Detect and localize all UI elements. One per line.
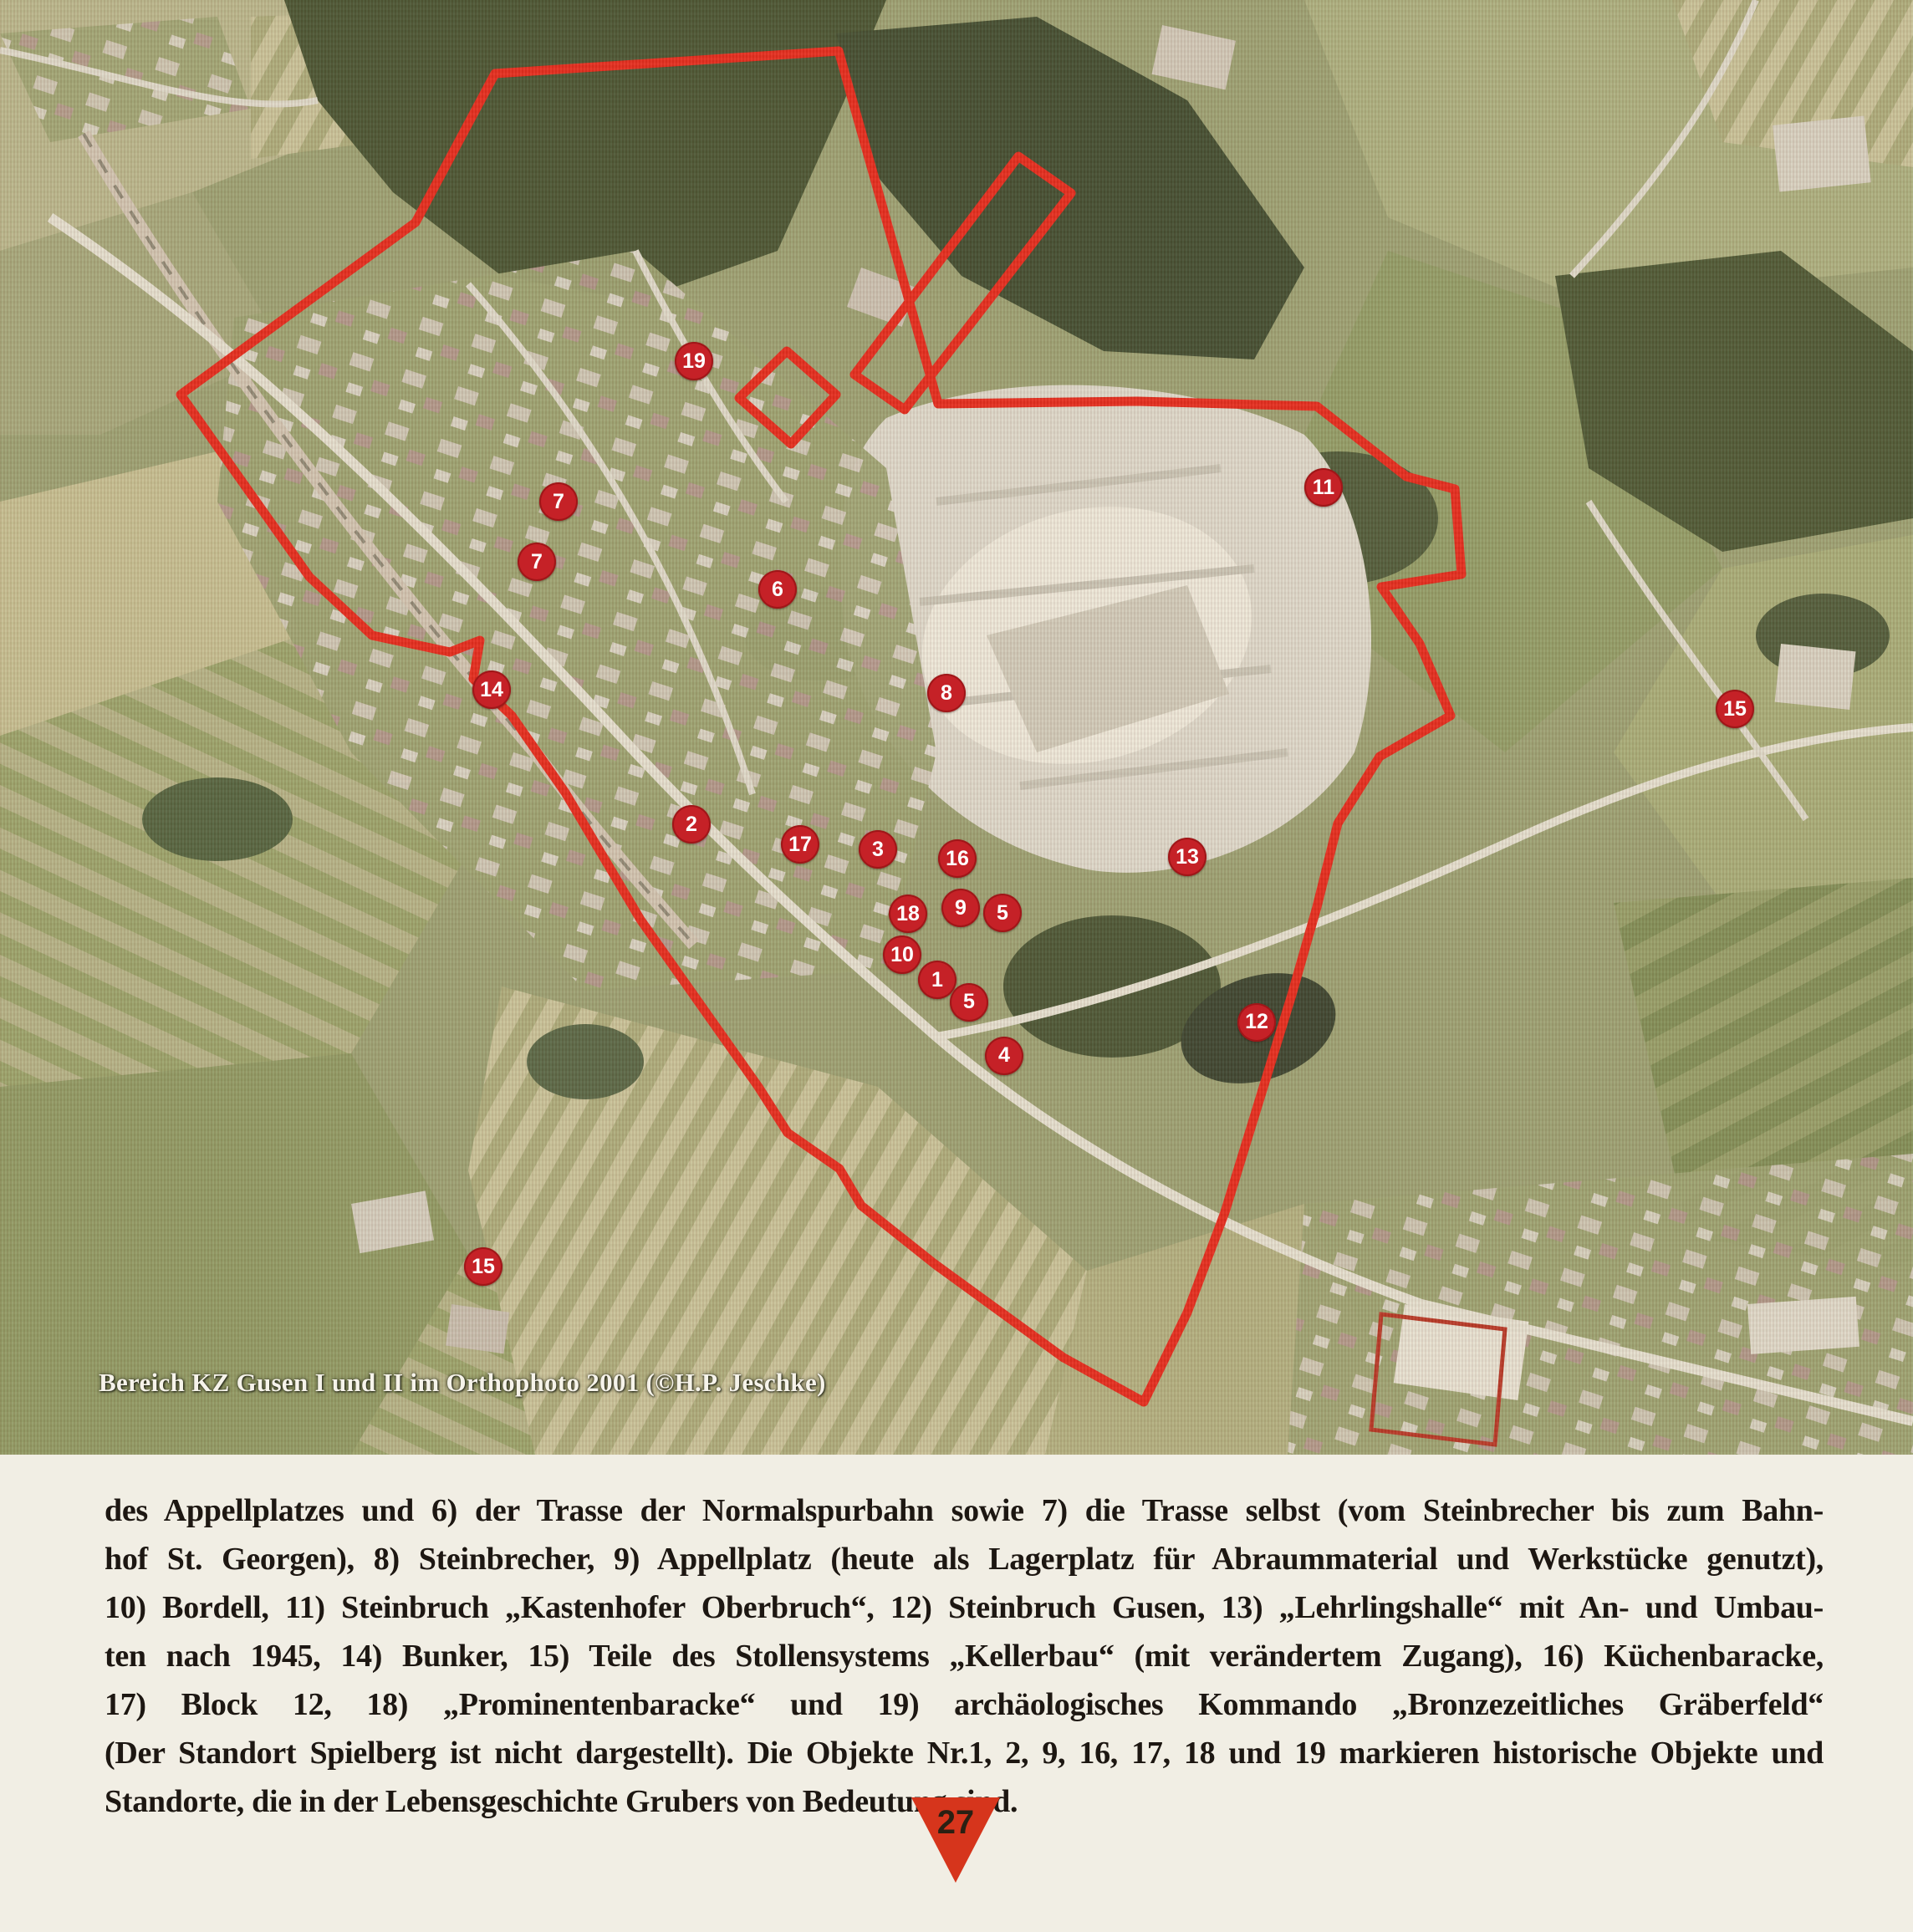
- page-number-text: 27: [911, 1804, 1000, 1842]
- body-text-line: 17) Block 12, 18) „Prominentenbaracke“ u…: [105, 1680, 1824, 1729]
- aerial-photo: 197761181415217316131895101541215 Bereic…: [0, 0, 1913, 1455]
- body-text-line: des Appellplatzes und 6) der Trasse der …: [105, 1486, 1824, 1535]
- boundary-overlay: [0, 0, 1913, 1455]
- map-marker-2: 2: [672, 805, 711, 844]
- body-text-line: hof St. Georgen), 8) Steinbrecher, 9) Ap…: [105, 1535, 1824, 1583]
- page-number: 27: [911, 1797, 1000, 1883]
- map-marker-4: 4: [985, 1037, 1023, 1075]
- camp-boundary-strip: [854, 156, 1071, 410]
- map-marker-6: 6: [758, 570, 797, 609]
- map-marker-1: 1: [918, 961, 956, 999]
- book-page: 197761181415217316131895101541215 Bereic…: [0, 0, 1913, 1932]
- map-marker-5: 5: [950, 983, 988, 1022]
- map-marker-7: 7: [518, 543, 556, 581]
- body-text-line: 10) Bordell, 11) Steinbruch „Kastenhofer…: [105, 1583, 1824, 1632]
- body-text: des Appellplatzes und 6) der Trasse der …: [105, 1486, 1824, 1826]
- map-marker-15: 15: [1716, 690, 1754, 728]
- map-marker-17: 17: [781, 825, 819, 864]
- map-marker-5: 5: [983, 894, 1022, 932]
- body-text-line: (Der Standort Spielberg ist nicht darges…: [105, 1729, 1824, 1777]
- map-marker-10: 10: [883, 935, 921, 974]
- body-text-line: ten nach 1945, 14) Bunker, 15) Teile des…: [105, 1632, 1824, 1680]
- camp-boundary-square: [739, 351, 836, 444]
- map-marker-13: 13: [1168, 838, 1206, 876]
- photo-caption: Bereich KZ Gusen I und II im Orthophoto …: [99, 1368, 826, 1398]
- map-marker-3: 3: [859, 830, 897, 869]
- map-marker-15: 15: [464, 1247, 502, 1286]
- map-marker-9: 9: [941, 889, 980, 927]
- map-marker-18: 18: [889, 895, 927, 933]
- memorial-outline: [1371, 1314, 1505, 1445]
- map-marker-8: 8: [927, 674, 966, 712]
- map-marker-14: 14: [472, 670, 511, 709]
- camp-boundary-main: [181, 51, 1462, 1402]
- map-marker-11: 11: [1304, 468, 1343, 507]
- map-marker-7: 7: [539, 482, 578, 521]
- map-marker-12: 12: [1237, 1003, 1276, 1042]
- map-marker-19: 19: [675, 342, 713, 380]
- map-marker-16: 16: [938, 839, 977, 878]
